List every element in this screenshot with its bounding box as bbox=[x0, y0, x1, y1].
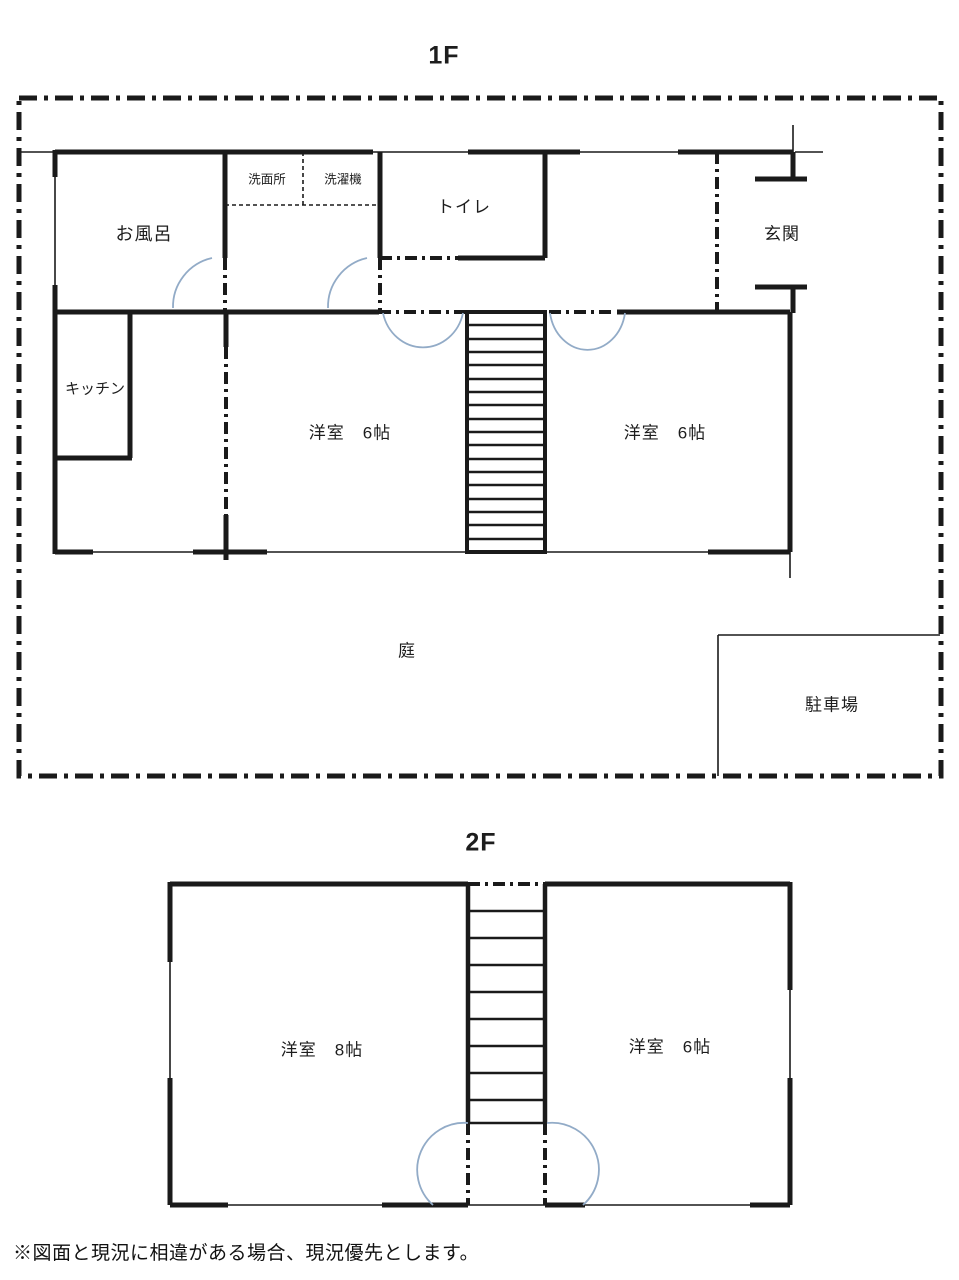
room-label-toilet: トイレ bbox=[437, 193, 491, 218]
room-label-western-room-left-2f: 洋室 8帖 bbox=[281, 1036, 363, 1061]
door-swing-arcs bbox=[173, 258, 625, 1205]
room-label-entrance: 玄関 bbox=[764, 220, 800, 245]
stairs-2f bbox=[468, 884, 545, 1123]
room-label-bath: お風呂 bbox=[116, 220, 173, 246]
walls-1f bbox=[55, 150, 807, 560]
room-label-western-room-left-1f: 洋室 6帖 bbox=[309, 419, 391, 444]
floor1-title: 1F bbox=[428, 42, 459, 71]
disclaimer-note: ※図面と現況に相違がある場合、現況優先とします。 bbox=[13, 1238, 479, 1265]
area-label-parking: 駐車場 bbox=[805, 691, 859, 716]
stairs-1f bbox=[467, 312, 545, 552]
room-label-kitchen: キッチン bbox=[65, 378, 125, 399]
room-label-laundry: 洗濯機 bbox=[324, 169, 362, 188]
room-label-western-room-right-2f: 洋室 6帖 bbox=[629, 1033, 711, 1058]
floorplan-page: 1F お風呂 洗面所 洗濯機 トイレ 玄関 キッチン 洋室 6帖 洋室 6帖 庭… bbox=[0, 0, 959, 1280]
room-label-western-room-right-1f: 洋室 6帖 bbox=[624, 419, 706, 444]
floor2-title: 2F bbox=[465, 829, 496, 858]
thin-lines-2f bbox=[170, 962, 790, 1205]
room-label-washroom: 洗面所 bbox=[248, 169, 286, 188]
dashdot-partitions-2f bbox=[468, 884, 545, 1205]
area-label-garden: 庭 bbox=[398, 637, 416, 662]
